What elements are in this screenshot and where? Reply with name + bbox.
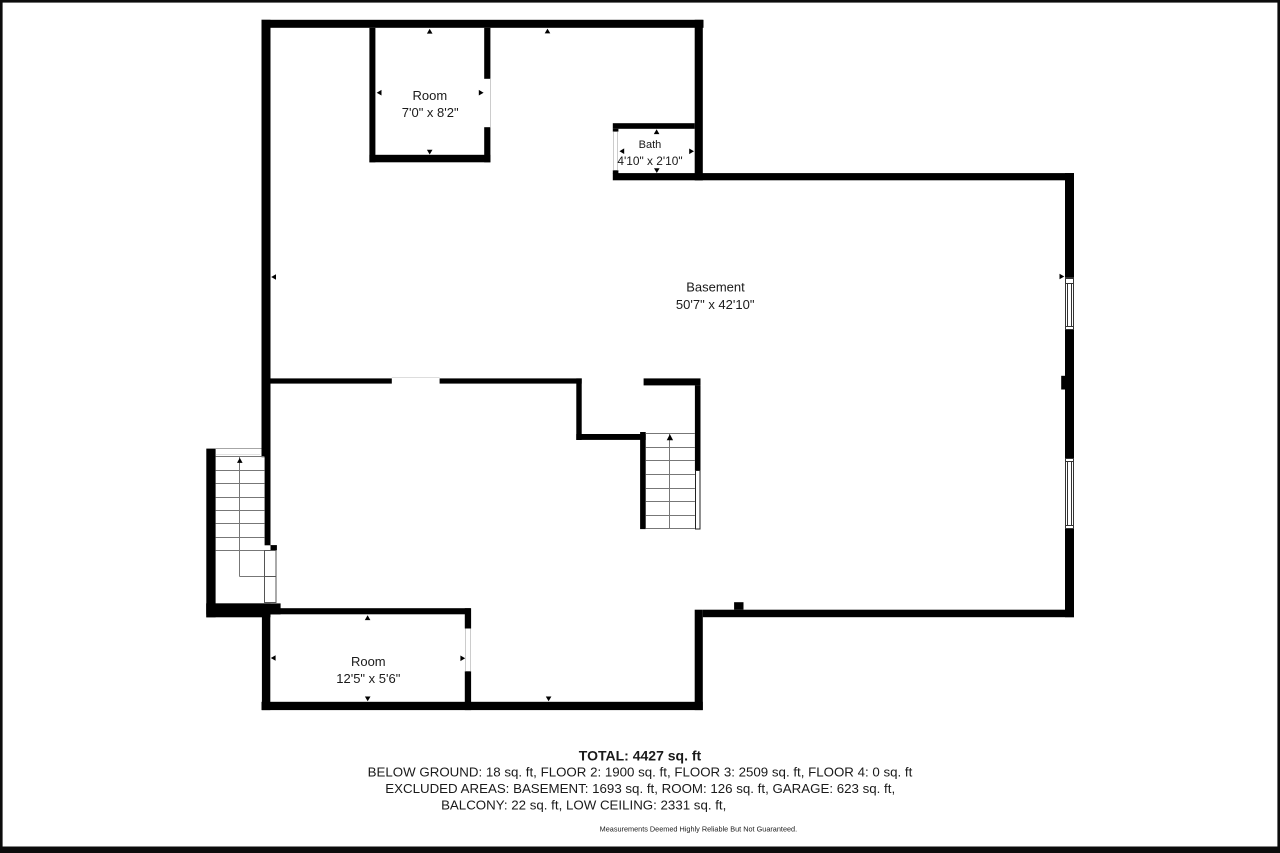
svg-text:Room: Room — [413, 88, 448, 103]
svg-text:12'5" x 5'6": 12'5" x 5'6" — [336, 671, 400, 686]
svg-text:EXCLUDED AREAS: BASEMENT: 1693: EXCLUDED AREAS: BASEMENT: 1693 sq. ft, R… — [385, 781, 895, 796]
svg-text:BALCONY: 22 sq. ft, LOW CEILIN: BALCONY: 22 sq. ft, LOW CEILING: 2331 sq… — [441, 798, 726, 813]
svg-text:TOTAL: 4427 sq. ft: TOTAL: 4427 sq. ft — [579, 747, 702, 763]
svg-text:Basement: Basement — [686, 280, 745, 295]
svg-text:4'10" x 2'10": 4'10" x 2'10" — [617, 154, 682, 168]
svg-text:Room: Room — [351, 654, 386, 669]
svg-text:BELOW GROUND: 18 sq. ft, FLOOR: BELOW GROUND: 18 sq. ft, FLOOR 2: 1900 s… — [368, 765, 913, 780]
svg-text:50'7" x 42'10": 50'7" x 42'10" — [676, 297, 755, 312]
svg-text:Measurements Deemed Highly Rel: Measurements Deemed Highly Reliable But … — [600, 825, 798, 834]
svg-text:7'0" x 8'2": 7'0" x 8'2" — [402, 105, 459, 120]
svg-text:Bath: Bath — [639, 139, 662, 151]
